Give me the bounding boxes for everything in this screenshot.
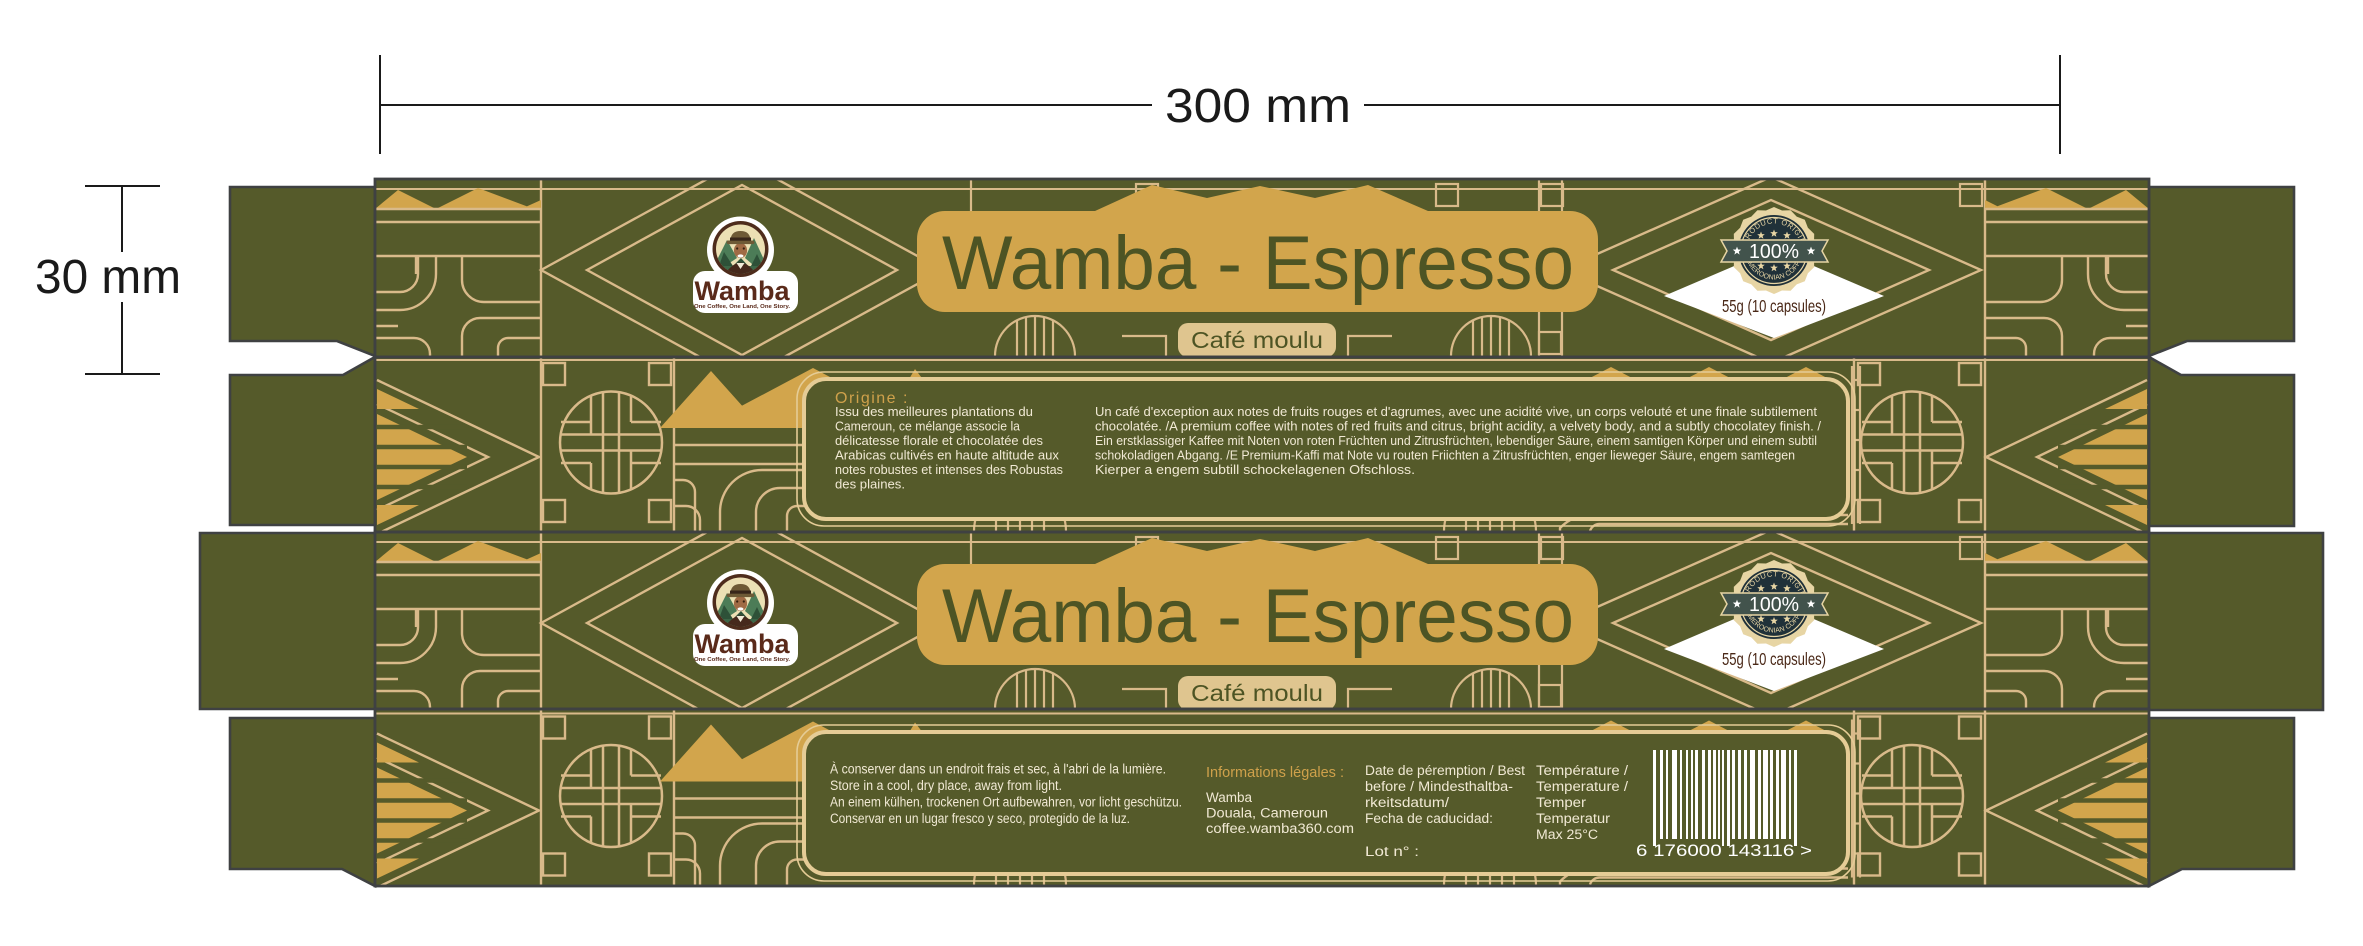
svg-text:Issu des meilleures plantation: Issu des meilleures plantations du bbox=[835, 404, 1033, 419]
svg-text:notes robustes et intenses des: notes robustes et intenses des Robustas bbox=[835, 462, 1063, 477]
svg-text:Température /: Température / bbox=[1536, 763, 1628, 778]
svg-text:An einem külhen, trockenen Ort: An einem külhen, trockenen Ort aufbewahr… bbox=[830, 795, 1182, 810]
svg-text:Arabicas cultivés en haute alt: Arabicas cultivés en haute altitude aux bbox=[835, 448, 1060, 463]
svg-text:Temperature /: Temperature / bbox=[1536, 779, 1628, 794]
svg-text:300 mm: 300 mm bbox=[1165, 80, 1351, 133]
svg-text:Douala, Cameroun: Douala, Cameroun bbox=[1206, 806, 1328, 821]
svg-text:Conservar en un lugar fresco y: Conservar en un lugar fresco y seco, pro… bbox=[830, 811, 1130, 826]
svg-text:rkeitsdatum/: rkeitsdatum/ bbox=[1365, 795, 1449, 810]
svg-text:Store in a cool, dry place, aw: Store in a cool, dry place, away from li… bbox=[830, 778, 1062, 793]
svg-text:Temperatur: Temperatur bbox=[1536, 811, 1611, 826]
svg-text:schokoladigen Abgang. /E Premi: schokoladigen Abgang. /E Premium-Kaffi m… bbox=[1095, 448, 1795, 463]
svg-text:30 mm: 30 mm bbox=[35, 251, 181, 304]
svg-text:6 176000 143116 >: 6 176000 143116 > bbox=[1636, 842, 1812, 860]
svg-text:Informations légales :: Informations légales : bbox=[1206, 765, 1344, 781]
svg-text:Ein erstklassiger Kaffee mit N: Ein erstklassiger Kaffee mit Noten von r… bbox=[1095, 433, 1817, 448]
svg-text:chocolatée. /A premium coffee: chocolatée. /A premium coffee with notes… bbox=[1095, 419, 1821, 434]
svg-text:Max 25°C: Max 25°C bbox=[1536, 827, 1598, 842]
svg-text:Lot n° :: Lot n° : bbox=[1365, 844, 1419, 859]
svg-text:Date de péremption / Best: Date de péremption / Best bbox=[1365, 763, 1525, 778]
svg-text:Kierper a engem subtill schock: Kierper a engem subtill schockelagenen O… bbox=[1095, 462, 1415, 477]
svg-text:Fecha de caducidad:: Fecha de caducidad: bbox=[1365, 811, 1493, 826]
svg-text:Cameroun, ce mélange associe l: Cameroun, ce mélange associe la bbox=[835, 419, 1021, 434]
svg-text:des plaines.: des plaines. bbox=[835, 477, 905, 492]
svg-text:Un café d'exception aux notes: Un café d'exception aux notes de fruits … bbox=[1095, 404, 1817, 419]
svg-text:Wamba: Wamba bbox=[1206, 790, 1252, 805]
svg-text:À conserver dans un endroit fr: À conserver dans un endroit frais et sec… bbox=[830, 762, 1166, 777]
svg-text:délicatesse florale et chocola: délicatesse florale et chocolatée des bbox=[835, 433, 1043, 448]
svg-text:coffee.wamba360.com: coffee.wamba360.com bbox=[1206, 821, 1354, 836]
svg-text:before / Mindesthaltba-: before / Mindesthaltba- bbox=[1365, 779, 1513, 794]
svg-text:Temper: Temper bbox=[1536, 795, 1587, 810]
